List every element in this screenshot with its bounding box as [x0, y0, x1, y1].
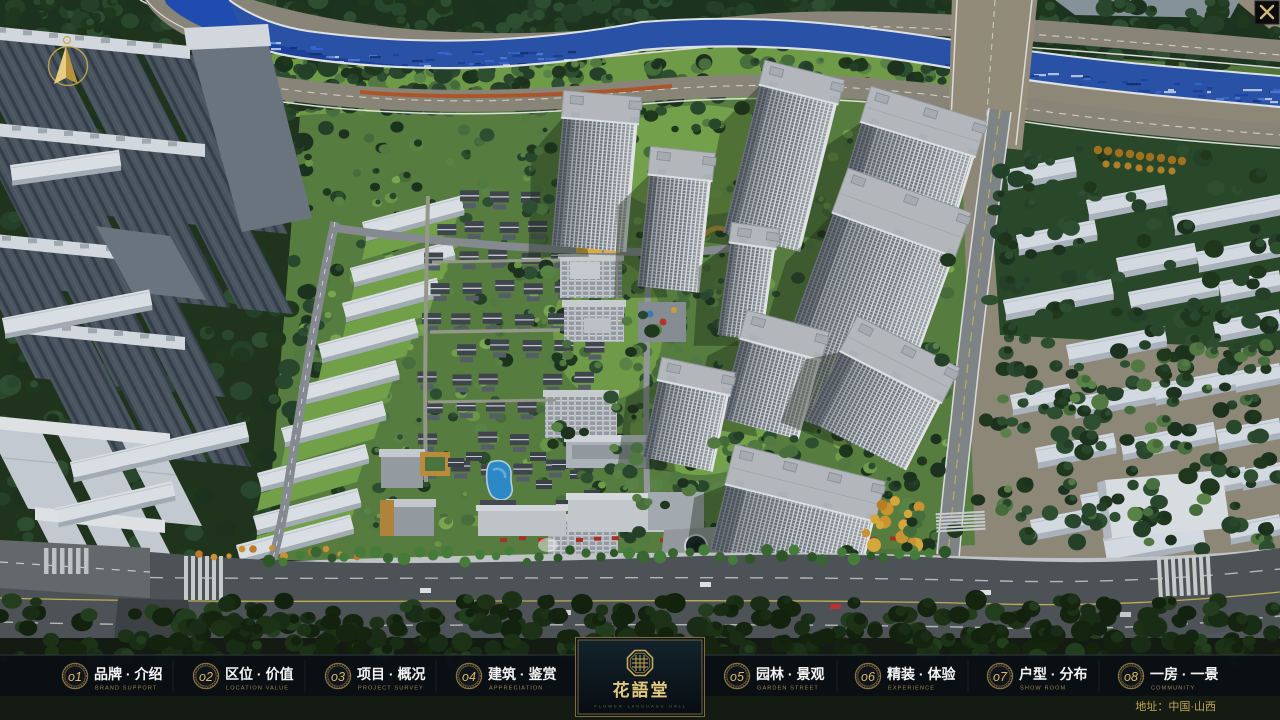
svg-text:BRAND SUPPORT: BRAND SUPPORT [95, 686, 157, 692]
svg-text:o4: o4 [462, 670, 476, 684]
svg-text:精装 · 体验: 精装 · 体验 [887, 666, 956, 682]
svg-text:o3: o3 [331, 670, 345, 684]
svg-text:区位 · 价值: 区位 · 价值 [225, 666, 293, 682]
svg-text:o8: o8 [1124, 670, 1138, 684]
svg-text:SHOW ROOM: SHOW ROOM [1020, 686, 1066, 692]
svg-text:PROJECT SURVEY: PROJECT SURVEY [358, 686, 424, 692]
svg-text:项目 · 概况: 项目 · 概况 [357, 666, 425, 682]
svg-text:EXPERIENCE: EXPERIENCE [888, 686, 935, 692]
svg-text:LOCATION VALUE: LOCATION VALUE [226, 686, 289, 692]
svg-text:COMMUNITY: COMMUNITY [1151, 686, 1195, 692]
svg-text:o1: o1 [68, 670, 82, 684]
svg-text:地址：中国·山西: 地址：中国·山西 [1135, 699, 1216, 713]
svg-text:GARDEN STREET: GARDEN STREET [757, 686, 819, 692]
svg-text:APPRECIATION: APPRECIATION [489, 686, 543, 692]
svg-text:o7: o7 [993, 670, 1008, 684]
svg-text:品牌 · 介绍: 品牌 · 介绍 [94, 666, 162, 682]
svg-text:F L O W E R · L A N G U A G E: F L O W E R · L A N G U A G E · H A L L [594, 705, 685, 709]
svg-text:o5: o5 [730, 670, 744, 684]
svg-text:园林 · 景观: 园林 · 景观 [756, 666, 824, 682]
svg-text:o6: o6 [861, 670, 875, 684]
svg-text:户型 · 分布: 户型 · 分布 [1019, 666, 1087, 682]
svg-text:建筑 · 鉴赏: 建筑 · 鉴赏 [488, 666, 556, 682]
svg-text:o2: o2 [199, 670, 213, 684]
svg-text:一房 · 一景: 一房 · 一景 [1150, 666, 1218, 682]
svg-text:花語堂: 花語堂 [613, 680, 670, 700]
